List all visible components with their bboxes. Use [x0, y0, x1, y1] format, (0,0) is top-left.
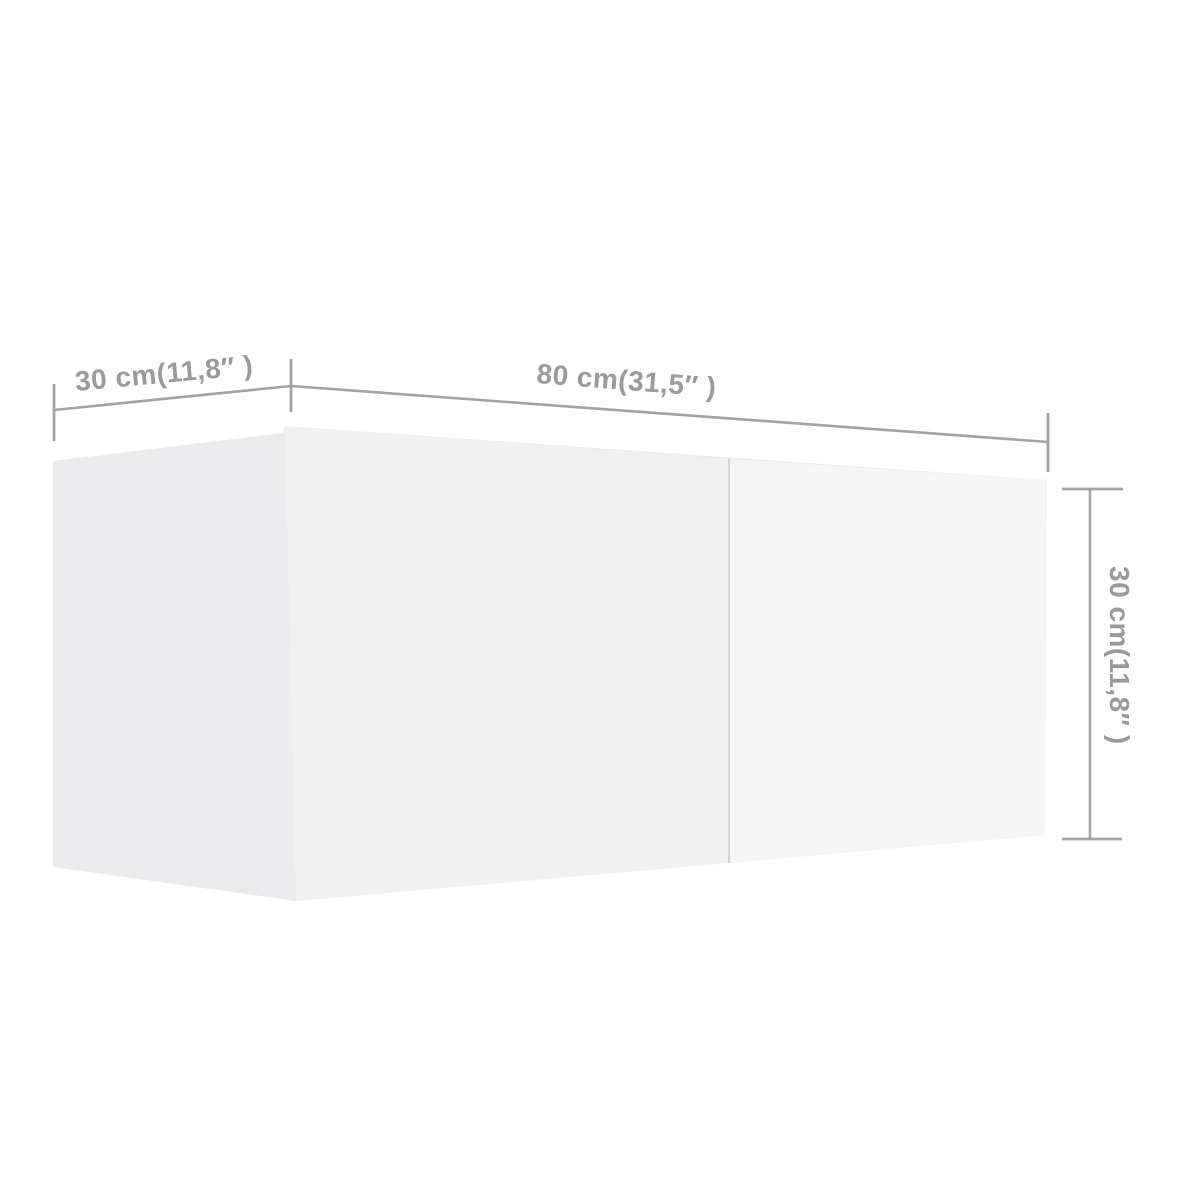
depth-dimension-label: 30 cm(11,8″ )	[74, 350, 255, 397]
depth-dimension: 30 cm(11,8″ )	[54, 350, 291, 441]
cabinet-right-door	[729, 459, 1047, 863]
height-dimension: 30 cm(11,8″ )	[1062, 489, 1135, 839]
height-dimension-label: 30 cm(11,8″ )	[1104, 566, 1135, 745]
width-dimension-label: 80 cm(31,5″ )	[536, 358, 718, 403]
product-dimension-diagram: 30 cm(11,8″ ) 80 cm(31,5″ ) 30 cm(11,8″ …	[0, 0, 1200, 1200]
diagram-canvas: 30 cm(11,8″ ) 80 cm(31,5″ ) 30 cm(11,8″ …	[0, 0, 1200, 1200]
cabinet-left-door	[285, 426, 729, 901]
